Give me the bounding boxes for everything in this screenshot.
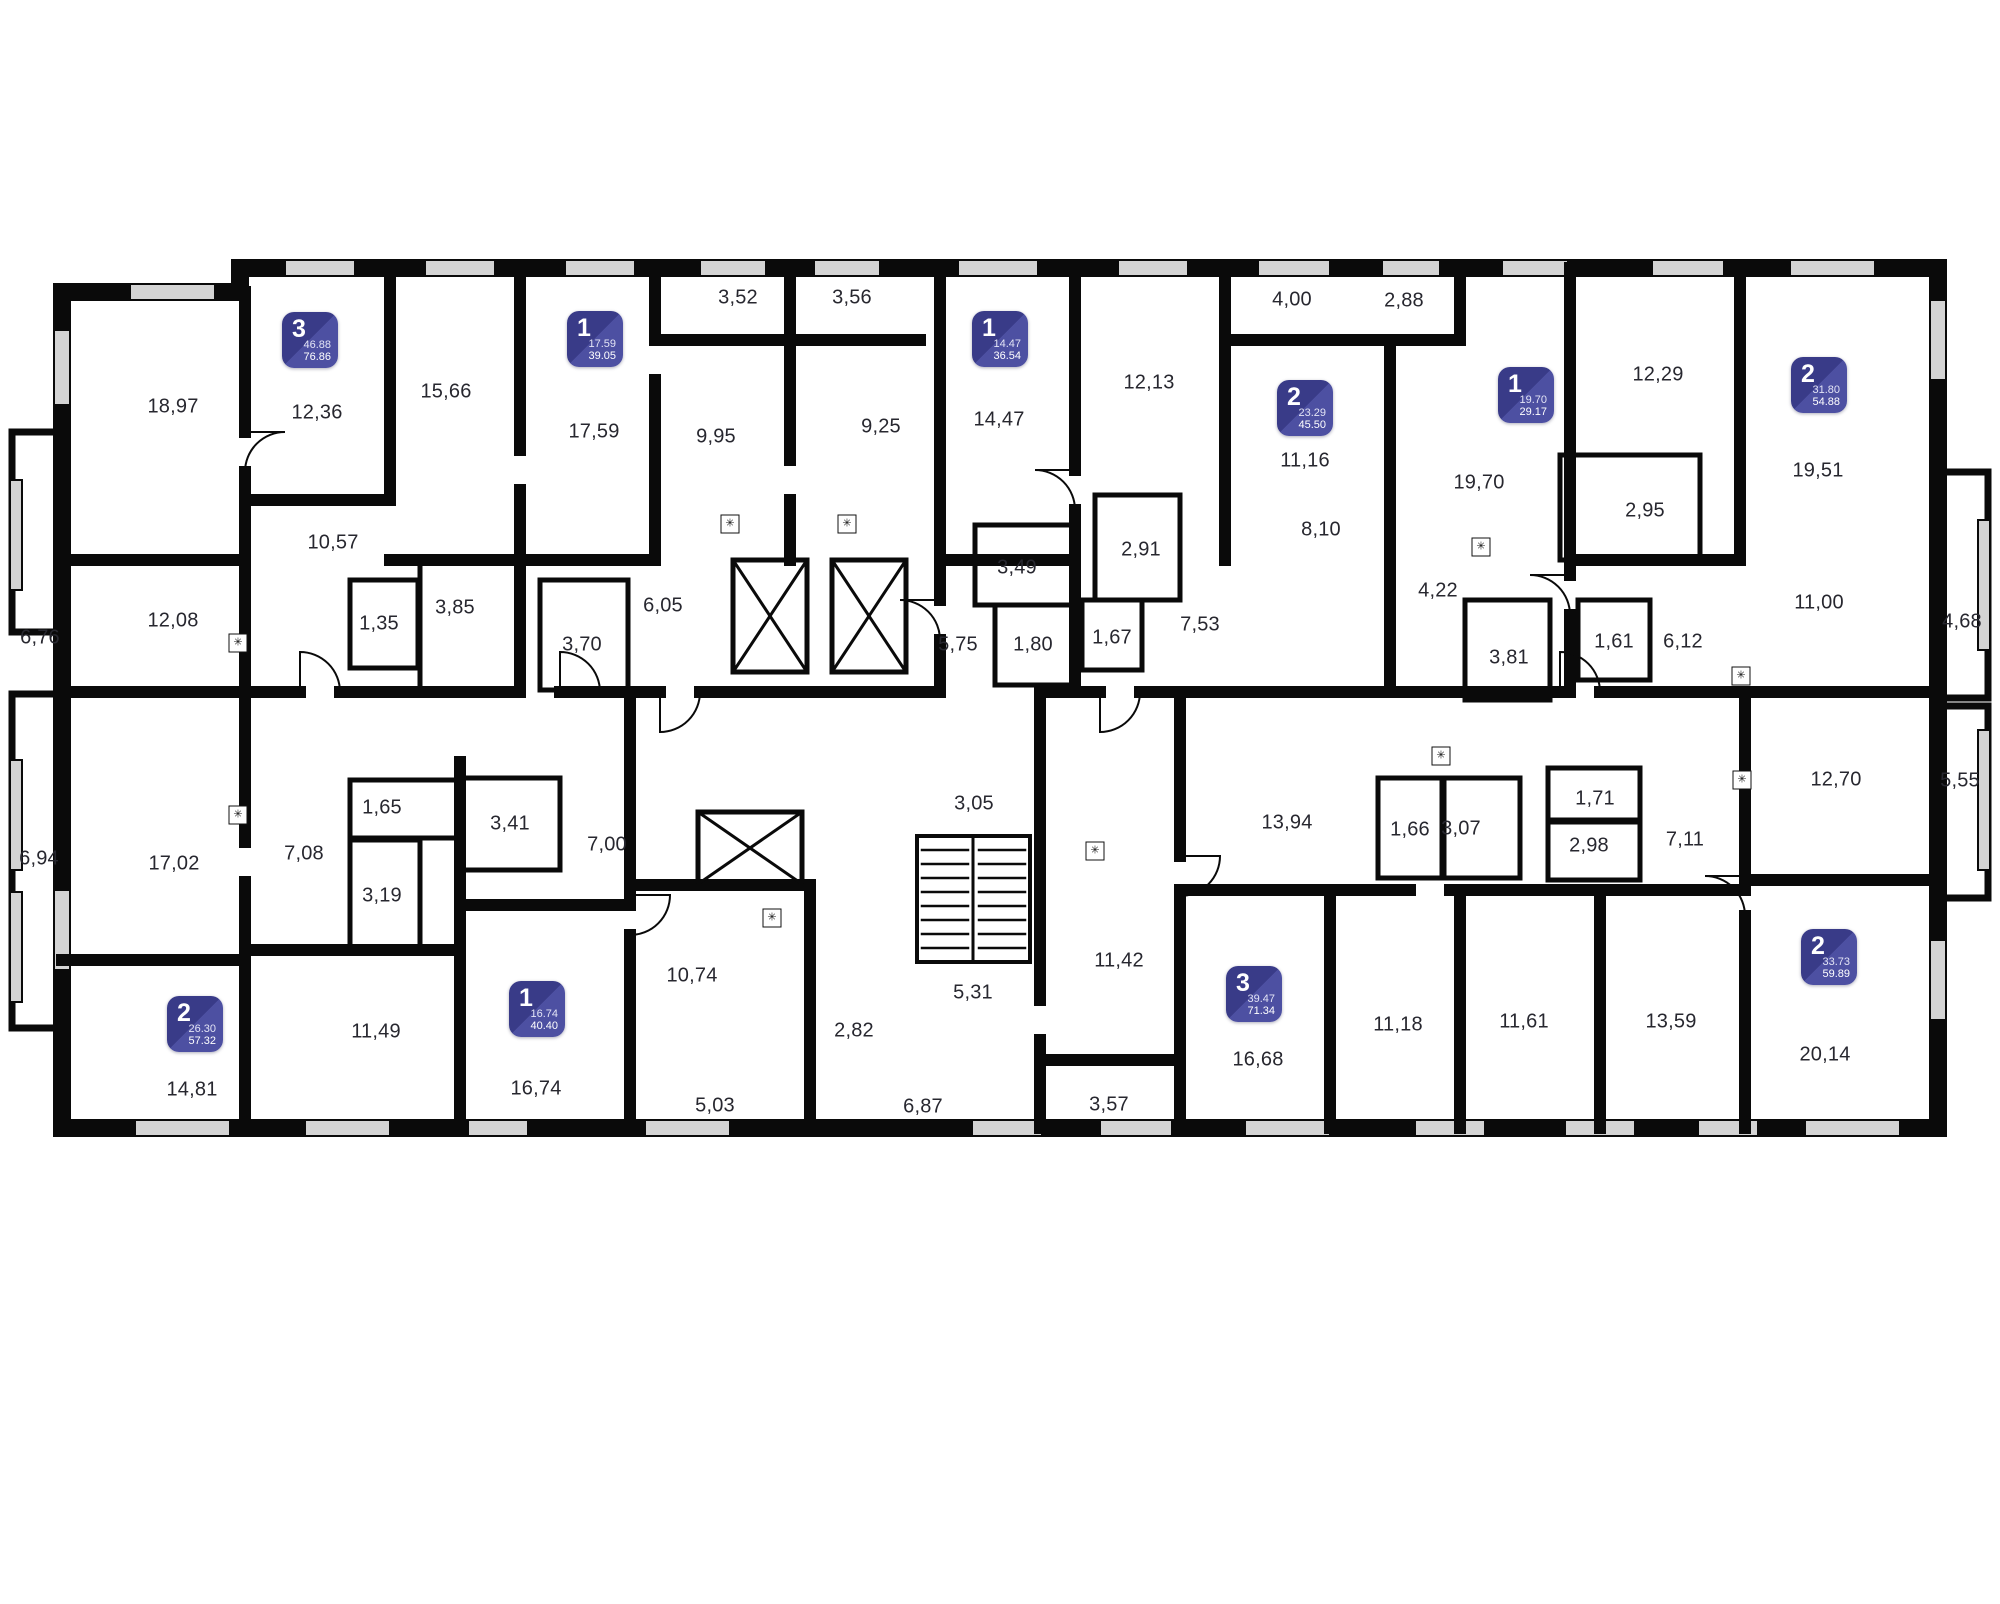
- room-area-label: 17,59: [568, 421, 619, 444]
- apartment-badge[interactable]: 226.3057.32: [167, 996, 223, 1052]
- room-area-label: 3,81: [1489, 647, 1529, 670]
- room-area-label: 11,61: [1499, 1011, 1549, 1034]
- living-area-value: 23.29: [1298, 407, 1326, 419]
- room-area-label: 7,08: [284, 843, 324, 866]
- living-area-value: 39.47: [1247, 993, 1275, 1005]
- room-area-label: 1,71: [1575, 788, 1615, 811]
- room-area-label: 4,22: [1418, 580, 1458, 603]
- total-area-value: 76.86: [303, 351, 331, 363]
- apartment-areas: 26.3057.32: [188, 1023, 216, 1047]
- room-area-label: 3,49: [997, 557, 1037, 580]
- total-area-value: 40.40: [530, 1020, 558, 1032]
- living-area-value: 17.59: [588, 338, 616, 350]
- apartment-areas: 14.4736.54: [993, 338, 1021, 362]
- room-area-label: 4,00: [1272, 289, 1312, 312]
- living-area-value: 19.70: [1519, 394, 1547, 406]
- apartment-badge[interactable]: 223.2945.50: [1277, 380, 1333, 436]
- living-area-value: 46.88: [303, 339, 331, 351]
- room-area-label: 6,76: [20, 627, 60, 650]
- total-area-value: 45.50: [1298, 419, 1326, 431]
- apartment-badge[interactable]: 119.7029.17: [1498, 367, 1554, 423]
- room-area-label: 10,74: [666, 965, 717, 988]
- room-area-label: 3,05: [954, 793, 994, 816]
- room-area-label: 5,03: [695, 1095, 735, 1118]
- room-area-label: 7,11: [1666, 829, 1704, 852]
- room-area-label: 3,41: [490, 813, 530, 836]
- total-area-value: 29.17: [1519, 406, 1547, 418]
- room-area-label: 5,55: [1940, 770, 1980, 793]
- living-area-value: 26.30: [188, 1023, 216, 1035]
- room-area-label: 1,66: [1390, 819, 1430, 842]
- room-area-label: 3,85: [435, 597, 475, 620]
- apartment-areas: 46.8876.86: [303, 339, 331, 363]
- kitchen-vent-icon: ✳: [229, 634, 248, 653]
- kitchen-vent-icon: ✳: [229, 806, 248, 825]
- room-area-label: 13,59: [1645, 1011, 1696, 1034]
- room-area-label: 19,51: [1792, 460, 1843, 483]
- room-area-label: 8,10: [1301, 519, 1341, 542]
- apartment-areas: 31.8054.88: [1812, 384, 1840, 408]
- kitchen-vent-icon: ✳: [721, 515, 740, 534]
- walls-layer: [0, 0, 2000, 1604]
- room-area-label: 11,00: [1794, 592, 1844, 615]
- room-area-label: 3,07: [1441, 818, 1481, 841]
- room-area-label: 3,57: [1089, 1094, 1129, 1117]
- room-area-label: 3,70: [562, 634, 602, 657]
- room-area-label: 2,91: [1121, 539, 1161, 562]
- apartment-badge[interactable]: 116.7440.40: [509, 981, 565, 1037]
- apartment-badge[interactable]: 114.4736.54: [972, 311, 1028, 367]
- room-area-label: 11,49: [351, 1021, 401, 1044]
- room-area-label: 6,94: [19, 848, 59, 871]
- room-area-label: 3,52: [718, 287, 758, 310]
- room-area-label: 12,08: [147, 610, 198, 633]
- room-area-label: 19,70: [1453, 472, 1504, 495]
- total-area-value: 71.34: [1247, 1005, 1275, 1017]
- room-area-label: 1,65: [362, 797, 402, 820]
- kitchen-vent-icon: ✳: [1086, 842, 1105, 861]
- room-area-label: 12,29: [1632, 364, 1683, 387]
- total-area-value: 59.89: [1822, 968, 1850, 980]
- room-area-label: 15,66: [420, 381, 471, 404]
- room-area-label: 7,00: [587, 834, 627, 857]
- room-area-label: 2,82: [834, 1020, 874, 1043]
- floor-plan: 18,9712,3615,6617,593,523,569,959,2514,4…: [0, 0, 2000, 1604]
- room-area-label: 4,68: [1942, 611, 1982, 634]
- apartment-areas: 19.7029.17: [1519, 394, 1547, 418]
- kitchen-vent-icon: ✳: [1432, 747, 1451, 766]
- room-area-label: 12,13: [1123, 372, 1174, 395]
- room-area-label: 3,19: [362, 885, 402, 908]
- room-area-label: 11,16: [1280, 450, 1330, 473]
- room-area-label: 5,31: [953, 982, 993, 1005]
- apartment-badge[interactable]: 231.8054.88: [1791, 357, 1847, 413]
- room-area-label: 6,87: [903, 1096, 943, 1119]
- living-area-value: 33.73: [1822, 956, 1850, 968]
- living-area-value: 31.80: [1812, 384, 1840, 396]
- apartment-areas: 16.7440.40: [530, 1008, 558, 1032]
- kitchen-vent-icon: ✳: [763, 909, 782, 928]
- apartment-badge[interactable]: 339.4771.34: [1226, 966, 1282, 1022]
- room-area-label: 17,02: [148, 853, 199, 876]
- apartment-areas: 33.7359.89: [1822, 956, 1850, 980]
- total-area-value: 54.88: [1812, 396, 1840, 408]
- room-area-label: 18,97: [147, 396, 198, 419]
- apartment-areas: 23.2945.50: [1298, 407, 1326, 431]
- kitchen-vent-icon: ✳: [1732, 667, 1751, 686]
- room-area-label: 13,94: [1261, 812, 1312, 835]
- room-area-label: 9,25: [861, 416, 901, 439]
- room-area-label: 14,81: [166, 1079, 217, 1102]
- apartment-badge[interactable]: 346.8876.86: [282, 312, 338, 368]
- room-area-label: 1,80: [1013, 634, 1053, 657]
- room-area-label: 16,74: [510, 1078, 561, 1101]
- room-area-label: 2,88: [1384, 290, 1424, 313]
- kitchen-vent-icon: ✳: [1733, 771, 1752, 790]
- room-area-label: 2,98: [1569, 835, 1609, 858]
- apartment-badge[interactable]: 117.5939.05: [567, 311, 623, 367]
- room-area-label: 1,35: [359, 613, 399, 636]
- room-area-label: 14,47: [973, 409, 1024, 432]
- total-area-value: 39.05: [588, 350, 616, 362]
- room-area-label: 7,53: [1180, 614, 1220, 637]
- room-area-label: 10,57: [307, 532, 358, 555]
- living-area-value: 16.74: [530, 1008, 558, 1020]
- room-area-label: 6,05: [643, 595, 683, 618]
- kitchen-vent-icon: ✳: [838, 515, 857, 534]
- room-area-label: 12,36: [291, 402, 342, 425]
- living-area-value: 14.47: [993, 338, 1021, 350]
- total-area-value: 36.54: [993, 350, 1021, 362]
- room-area-label: 1,67: [1092, 627, 1132, 650]
- kitchen-vent-icon: ✳: [1472, 538, 1491, 557]
- apartment-badge[interactable]: 233.7359.89: [1801, 929, 1857, 985]
- apartment-areas: 17.5939.05: [588, 338, 616, 362]
- room-area-label: 2,95: [1625, 500, 1665, 523]
- room-area-label: 6,12: [1663, 631, 1703, 654]
- room-area-label: 16,68: [1232, 1049, 1283, 1072]
- room-area-label: 11,18: [1373, 1014, 1423, 1037]
- room-area-label: 12,70: [1810, 769, 1861, 792]
- room-area-label: 1,61: [1594, 631, 1634, 654]
- total-area-value: 57.32: [188, 1035, 216, 1047]
- room-area-label: 11,42: [1094, 950, 1144, 973]
- apartment-areas: 39.4771.34: [1247, 993, 1275, 1017]
- room-area-label: 3,56: [832, 287, 872, 310]
- room-area-label: 9,95: [696, 426, 736, 449]
- room-area-label: 20,14: [1799, 1044, 1850, 1067]
- room-area-label: 5,75: [938, 634, 978, 657]
